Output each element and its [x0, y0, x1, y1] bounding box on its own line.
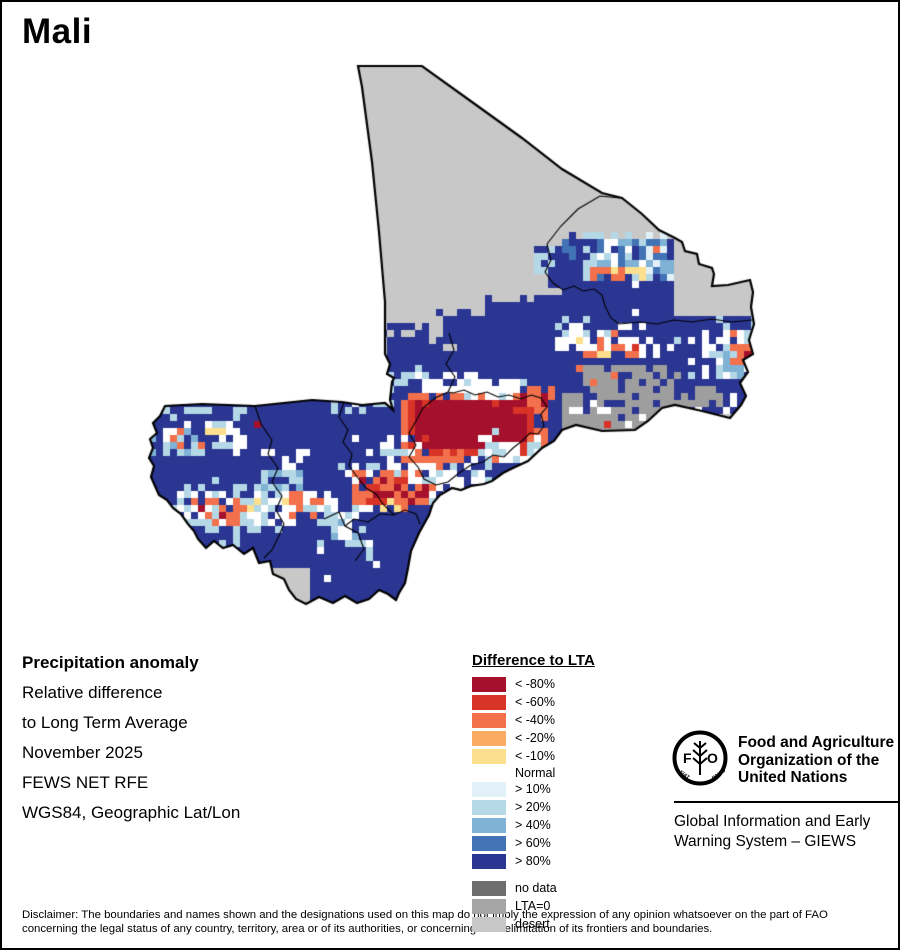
- legend-row: > 10%: [472, 780, 595, 798]
- disclaimer: Disclaimer: The boundaries and names sho…: [22, 908, 828, 936]
- info-line: Precipitation anomaly: [22, 648, 240, 678]
- legend-swatch: [472, 749, 506, 764]
- fao-logo-icon: F O FIAT PANIS: [672, 730, 728, 791]
- giews-line: Warning System – GIEWS: [674, 832, 900, 852]
- legend-row-label: > 40%: [515, 818, 551, 832]
- disclaimer-line: concerning the legal status of any count…: [22, 922, 828, 936]
- info-block: Precipitation anomalyRelative difference…: [22, 648, 240, 828]
- legend-row: < -40%: [472, 711, 595, 729]
- legend-row-label: < -80%: [515, 677, 555, 691]
- disclaimer-line: Disclaimer: The boundaries and names sho…: [22, 908, 828, 922]
- legend-swatch: [472, 782, 506, 797]
- fao-org-line: Food and Agriculture: [738, 734, 894, 752]
- legend-swatch: [472, 818, 506, 833]
- legend-row: > 40%: [472, 816, 595, 834]
- legend-row-label: desert: [515, 917, 550, 931]
- legend-swatch: [472, 854, 506, 869]
- legend-swatch: [472, 881, 506, 896]
- legend-title: Difference to LTA: [472, 652, 595, 669]
- info-line: WGS84, Geographic Lat/Lon: [22, 798, 240, 828]
- legend-rows: < -80%< -60%< -40%< -20%< -10%Normal> 10…: [472, 675, 595, 933]
- legend-row: desert: [472, 915, 595, 933]
- fao-org-name: Food and Agriculture Organization of the…: [738, 730, 894, 787]
- legend-row-label: no data: [515, 881, 557, 895]
- legend-row-label: > 60%: [515, 836, 551, 850]
- legend-row-label: < -40%: [515, 713, 555, 727]
- svg-text:O: O: [707, 750, 718, 766]
- legend-row: < -10%: [472, 747, 595, 765]
- svg-text:F: F: [683, 750, 692, 766]
- legend-swatch: [472, 695, 506, 710]
- legend-row-label: < -10%: [515, 749, 555, 763]
- legend-row: > 20%: [472, 798, 595, 816]
- info-line: Relative difference: [22, 678, 240, 708]
- legend-swatch: [472, 899, 506, 914]
- giews-label: Global Information and Early Warning Sys…: [674, 812, 900, 852]
- legend-row: < -60%: [472, 693, 595, 711]
- legend-swatch: [472, 836, 506, 851]
- info-line: to Long Term Average: [22, 708, 240, 738]
- fao-org-line: Organization of the: [738, 752, 894, 770]
- legend-row: > 80%: [472, 852, 595, 870]
- fao-org-line: United Nations: [738, 769, 894, 787]
- legend-row-label: LTA=0: [515, 899, 550, 913]
- legend-row-label: < -60%: [515, 695, 555, 709]
- legend-row: Normal: [472, 765, 595, 780]
- legend-row: LTA=0: [472, 897, 595, 915]
- giews-line: Global Information and Early: [674, 812, 900, 832]
- legend-swatch: [472, 677, 506, 692]
- fao-separator: [674, 801, 900, 803]
- legend-row-label: > 20%: [515, 800, 551, 814]
- legend-row: no data: [472, 879, 595, 897]
- legend-swatch: [472, 800, 506, 815]
- legend-row-label: > 10%: [515, 782, 551, 796]
- legend-row-label: > 80%: [515, 854, 551, 868]
- legend-row: > 60%: [472, 834, 595, 852]
- legend-swatch: [472, 917, 506, 932]
- map-sheet: Mali Precipitation anomalyRelative diffe…: [0, 0, 900, 950]
- page-title: Mali: [22, 12, 92, 52]
- legend-row: < -20%: [472, 729, 595, 747]
- info-line: November 2025: [22, 738, 240, 768]
- info-line: FEWS NET RFE: [22, 768, 240, 798]
- legend-swatch: [472, 731, 506, 746]
- legend-row-label: < -20%: [515, 731, 555, 745]
- legend-row: < -80%: [472, 675, 595, 693]
- fao-block: F O FIAT PANIS Food and Agriculture Orga…: [672, 730, 900, 852]
- legend: Difference to LTA < -80%< -60%< -40%< -2…: [472, 652, 595, 933]
- legend-swatch: [472, 713, 506, 728]
- legend-row-label: Normal: [515, 766, 555, 780]
